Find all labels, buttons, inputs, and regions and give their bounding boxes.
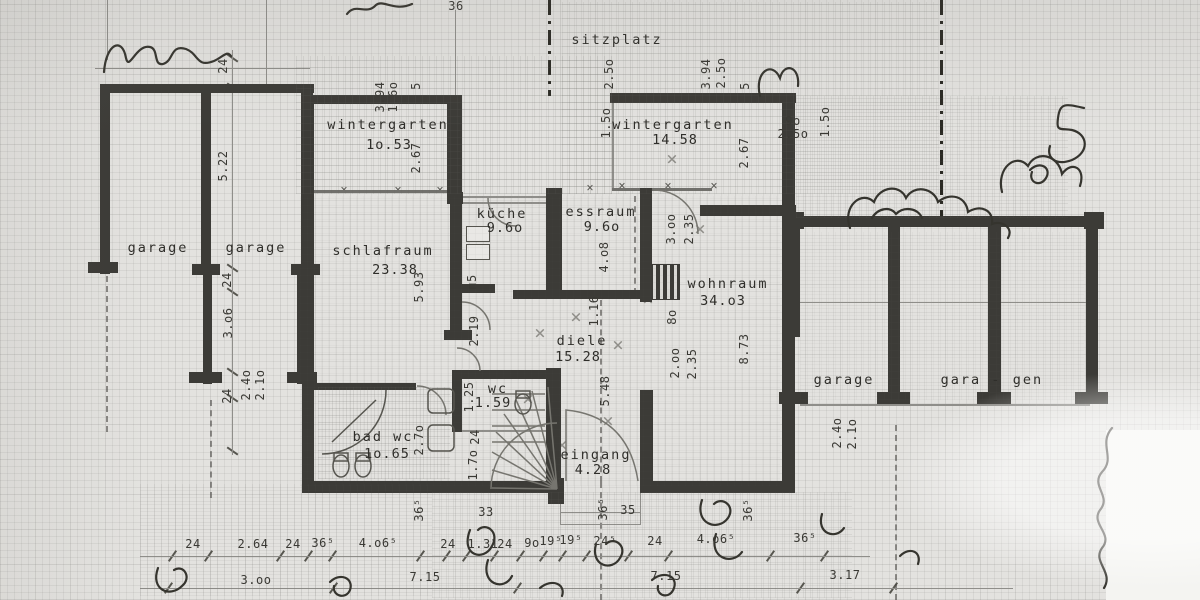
wall — [640, 188, 652, 302]
pencil-line — [107, 0, 108, 60]
pencil-line — [462, 196, 546, 198]
pencil-line — [798, 302, 1086, 303]
floorplan-canvas: ××××××××××××××××××××××××××× — [0, 0, 1200, 600]
axis-dash-line — [210, 400, 212, 498]
dim-label: 24 — [185, 537, 200, 551]
dim-label-vertical: 1.25 — [462, 382, 476, 413]
pencil-line — [266, 0, 267, 88]
pencil-x-mark: × — [666, 148, 677, 170]
pencil-line — [455, 10, 456, 95]
room-area-diele: 15.28 — [555, 349, 601, 365]
room-area-essraum: 9.6o — [584, 219, 621, 235]
wall — [513, 290, 641, 299]
wall — [782, 93, 795, 493]
dim-label-vertical: 2.4o — [239, 370, 253, 401]
top-scribble — [347, 3, 412, 14]
scan-edge — [1106, 430, 1200, 600]
dim-label-vertical: 2.1o — [845, 419, 859, 450]
room-area-wintergarten: 1o.53 — [366, 137, 412, 153]
pencil-x-mark: × — [602, 410, 613, 432]
dim-label-vertical: 4.o8 — [597, 242, 611, 273]
dim-label-vertical: 24 — [220, 388, 234, 403]
room-label-gara: gara - — [941, 372, 1002, 388]
axis-dash-line — [106, 276, 108, 432]
dim-label-vertical: 5.48 — [598, 376, 612, 407]
wall — [314, 383, 416, 390]
window-x-mark: × — [586, 180, 593, 194]
pencil-line — [462, 202, 546, 204]
room-label-gen: gen — [1013, 372, 1043, 388]
shrub-scribble — [848, 189, 1009, 238]
dim-label-vertical: 5.22 — [216, 151, 230, 182]
dim-label-vertical: 2.5o — [602, 59, 616, 90]
kitchen-fixture — [466, 244, 490, 260]
wall — [201, 88, 211, 274]
dim-label-vertical: 8.73 — [737, 334, 751, 365]
wall — [1086, 229, 1098, 403]
room-label-essraum: essraum — [566, 204, 637, 220]
dim-label-vertical: 2.7o — [412, 425, 426, 456]
dim-label: 7.15 — [651, 569, 682, 583]
toilet — [333, 455, 349, 477]
dim-label: 36 — [448, 0, 463, 13]
dim-label-vertical: 2.oo — [668, 348, 682, 379]
dim-label-vertical: 5 — [409, 82, 423, 90]
wall — [888, 227, 900, 403]
handwritten-flourish — [1030, 165, 1048, 183]
dim-label: 9o — [524, 536, 539, 550]
dim-label-vertical: 5.93 — [412, 272, 426, 303]
wall — [100, 84, 314, 93]
dim-label-vertical: 2.1o — [253, 370, 267, 401]
room-area-schlafraum: 23.38 — [372, 262, 418, 278]
pencil-line — [452, 430, 548, 432]
dim-label: 9o — [785, 114, 800, 128]
dim-label-vertical: 2.35 — [685, 349, 699, 380]
dim-label-vertical: 3.o6 — [221, 308, 235, 339]
dim-label: 3.oo — [241, 573, 272, 587]
window-line — [612, 188, 712, 191]
dim-label: 24 — [647, 534, 662, 548]
wall — [548, 478, 564, 504]
dim-label: 7.15 — [410, 570, 441, 584]
wall — [1084, 212, 1104, 229]
room-label-wintergarten: wintergarten — [612, 117, 734, 133]
dim-label: 24 — [440, 537, 455, 551]
pencil-x-mark: × — [534, 322, 545, 344]
dim-label: 24 — [285, 537, 300, 551]
dim-label-vertical: 2.5o — [714, 58, 728, 89]
dim-label-vertical: 2.67 — [737, 138, 751, 169]
wall — [546, 368, 561, 490]
section-line — [940, 0, 943, 217]
pencil-line — [560, 524, 640, 525]
pencil-x-mark: × — [612, 334, 623, 356]
dim-label-vertical: 3.oo — [664, 214, 678, 245]
wall — [452, 370, 462, 432]
dim-label-vertical: 1.5o — [818, 107, 832, 138]
shrub-scribble — [540, 583, 563, 596]
room-area-wintergarten: 14.58 — [652, 132, 698, 148]
dim-label: 24 — [497, 537, 512, 551]
pencil-line — [95, 68, 310, 69]
dim-label-vertical: 1.16 — [587, 296, 601, 327]
dim-label-vertical: 2.19 — [467, 316, 481, 347]
basin — [428, 425, 454, 451]
dim-label: 1.31 — [468, 537, 499, 551]
room-label-sitzplatz: sitzplatz — [571, 32, 662, 48]
dim-label: 4.o6⁵ — [697, 532, 736, 546]
dim-label-vertical: 2.67 — [409, 143, 423, 174]
toilet-tank — [334, 453, 348, 461]
dim-label-vertical: 3.94 — [699, 59, 713, 90]
dim-label-vertical: 1.5o — [599, 108, 613, 139]
wall — [447, 95, 462, 197]
pencil-line — [640, 493, 641, 525]
pencil-line — [140, 588, 1013, 589]
basin — [428, 389, 454, 413]
room-label-diele: diele — [557, 333, 608, 349]
dim-label-vertical: 5 — [738, 82, 752, 90]
dim-label-vertical: п5 — [465, 274, 479, 289]
pencil-line — [140, 556, 870, 557]
pencil-x-mark: × — [522, 388, 533, 410]
room-area-bad-wc: 1o.65 — [364, 446, 410, 462]
dim-label: 36⁵ — [311, 536, 334, 550]
dim-label-vertical: 24 — [220, 272, 234, 287]
wall — [610, 93, 796, 103]
room-label-garage: garage — [226, 240, 287, 256]
wall — [301, 88, 313, 274]
wall — [450, 196, 462, 294]
wall — [700, 205, 796, 216]
room-area-küche: 9.6o — [487, 220, 524, 236]
wall — [297, 274, 307, 384]
dim-label-vertical: 8o — [665, 309, 679, 324]
wall — [302, 481, 460, 493]
door-arc-badwc — [417, 386, 446, 415]
dim-label-vertical: 3.94 — [373, 82, 387, 113]
room-label-schlafraum: schlafraum — [332, 243, 433, 259]
dim-label: 2.5o — [778, 127, 809, 141]
dim-label-vertical: 36⁵ — [596, 497, 610, 520]
room-label-garage: garage — [128, 240, 189, 256]
grid-patch — [796, 96, 1068, 218]
wall — [460, 481, 548, 493]
dim-label: 19⁵ — [559, 533, 582, 547]
dim-label-vertical: 24 — [468, 429, 482, 444]
dim-label-vertical: 1.6o — [386, 82, 400, 113]
room-label-eingang: eingang — [561, 447, 632, 463]
dim-label-vertical: 36⁵ — [741, 498, 755, 521]
shrub-scribble — [759, 68, 798, 96]
dim-label-vertical: 2.4o — [830, 418, 844, 449]
handwritten-5 — [1049, 105, 1085, 162]
dim-label: 36⁵ — [793, 531, 816, 545]
room-label-garage: garage — [814, 372, 875, 388]
window-line — [314, 190, 448, 193]
dim-label-vertical: 24 — [216, 58, 230, 73]
wall — [640, 481, 794, 493]
room-area-wc: 1.59 — [475, 395, 512, 411]
wall — [203, 274, 212, 384]
room-label-wohnraum: wohnraum — [687, 276, 768, 292]
dim-label: 35 — [620, 503, 635, 517]
pencil-x-mark: × — [570, 306, 581, 328]
wall — [546, 188, 562, 296]
dim-label: 2.64 — [238, 537, 269, 551]
shrub-scribble — [700, 500, 742, 559]
shrub-scribble — [1001, 156, 1082, 192]
dim-label-vertical: 2.35 — [682, 214, 696, 245]
dim-label-vertical: 1.7o — [466, 450, 480, 481]
shrub-scribble — [821, 514, 844, 534]
wall — [100, 84, 110, 274]
dim-label: 33 — [478, 505, 493, 519]
shrub-scribble — [900, 551, 919, 564]
wall — [450, 293, 462, 339]
wall — [640, 390, 653, 482]
wall — [804, 216, 1085, 227]
pencil-line — [800, 404, 1090, 406]
room-area-wohnraum: 34.o3 — [700, 293, 746, 309]
dim-label: 4.o6⁵ — [359, 536, 398, 550]
room-label-wintergarten: wintergarten — [327, 117, 449, 133]
dim-label-vertical: 36⁵ — [412, 498, 426, 521]
wall — [452, 370, 550, 379]
axis-dash-line — [895, 425, 897, 600]
dim-label: 3.17 — [830, 568, 861, 582]
section-line — [548, 0, 551, 96]
dim-label: 24⁵ — [593, 534, 616, 548]
room-label-bad-wc: bad wc — [353, 429, 414, 445]
room-area-eingang: 4.28 — [575, 462, 612, 478]
